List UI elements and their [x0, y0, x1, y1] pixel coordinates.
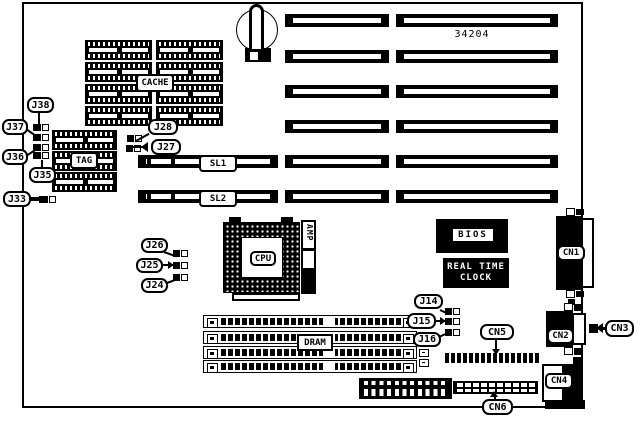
jumper-callout-j36: J36: [2, 149, 28, 165]
jumper-block: [49, 196, 56, 203]
jumper-callout-j27: J27: [151, 139, 181, 155]
rtc-chip: REAL TIME CLOCK: [443, 258, 509, 288]
cn1-bracket: [576, 291, 584, 297]
power-connector: [359, 378, 452, 399]
cn2-bracket: [564, 347, 573, 355]
board-corner-fill: [545, 400, 585, 409]
jumper-callout-j28: J28: [148, 119, 178, 135]
jumper-block: [39, 196, 48, 203]
cn2-connector-body: [572, 313, 586, 345]
connector-callout-cn5: CN5: [480, 324, 514, 340]
rtc-label-line2: CLOCK: [460, 273, 492, 284]
isa-slot-segment: [396, 50, 558, 63]
jumper-callout-j25: J25: [136, 258, 163, 273]
dram-label: DRAM: [297, 334, 333, 351]
jumper-callout-j38: J38: [27, 97, 54, 113]
jumper-block: [42, 152, 49, 159]
sl2-slot: SL2: [138, 190, 278, 203]
cpu-label: CPU: [250, 251, 276, 266]
isa-slot-segment: [285, 190, 389, 203]
cn2-bracket: [574, 304, 583, 311]
cpu-socket-lever: [232, 293, 300, 301]
connector-callout-cn6: CN6: [482, 399, 513, 415]
motherboard-diagram: 34204 SL1 SL2 CACHE TAG: [0, 0, 642, 426]
simm-clip: [419, 359, 429, 367]
cache-label: CACHE: [136, 74, 174, 92]
jumper-callout-j15: J15: [407, 313, 436, 329]
cn1-label: CN1: [557, 245, 585, 261]
jumper-block: [127, 135, 134, 142]
isa-slot-segment: [396, 85, 558, 98]
isa-slot-segment: [396, 190, 558, 203]
bios-label: BIOS: [451, 227, 495, 243]
isa-slot-segment: [285, 155, 389, 168]
jumper-callout-j14: J14: [414, 294, 443, 309]
sl1-slot: SL1: [138, 155, 278, 168]
jumper-callout-j35: J35: [29, 167, 56, 183]
cn2-bracket: [564, 303, 573, 311]
cn4-label: CN4: [545, 373, 573, 389]
jumper-block: [453, 318, 460, 325]
jumper-block: [126, 145, 133, 152]
jumper-block: [42, 134, 49, 141]
jumper-block: [173, 262, 180, 269]
jumper-block: [181, 262, 188, 269]
bulb-icon: [233, 4, 283, 66]
jumper-block: [33, 124, 41, 131]
jumper-block: [33, 152, 41, 159]
cn2-bracket: [574, 348, 583, 355]
cache-chip: [85, 106, 152, 126]
isa-slot-segment: [396, 155, 558, 168]
jumper-block: [42, 124, 49, 131]
jumper-block: [453, 308, 460, 315]
jumper-callout-j33: J33: [3, 191, 31, 207]
connector-callout-cn3: CN3: [605, 320, 634, 337]
isa-slot-segment: [285, 14, 389, 27]
jumper-callout-j24: J24: [141, 278, 168, 293]
cn1-bracket: [576, 209, 584, 215]
jumper-block: [42, 144, 49, 151]
amp-socket-strip: AMP: [301, 220, 316, 294]
isa-slot-segment: [285, 120, 389, 133]
simm-socket: [203, 315, 417, 328]
tag-chip: [52, 172, 117, 192]
jumper-block: [453, 329, 460, 336]
jumper-callout-j16: J16: [413, 332, 441, 347]
board-part-number: 34204: [448, 29, 496, 41]
cache-chip: [156, 40, 223, 60]
isa-slot-segment: [285, 85, 389, 98]
sl2-label: SL2: [199, 190, 237, 207]
tag-chip: [52, 130, 117, 150]
isa-slot-segment: [396, 14, 558, 27]
rtc-label-line1: REAL TIME: [447, 262, 505, 273]
jumper-callout-j26: J26: [141, 238, 168, 253]
isa-slot-segment: [285, 50, 389, 63]
isa-slot-segment: [396, 120, 558, 133]
jumper-block: [445, 318, 452, 325]
cn1-bracket: [566, 290, 575, 298]
tag-label: TAG: [70, 152, 98, 169]
jumper-callout-j37: J37: [2, 119, 28, 135]
jumper-block: [181, 250, 188, 257]
simm-clip: [419, 349, 429, 357]
cache-chip: [85, 40, 152, 60]
cn1-bracket: [566, 208, 575, 216]
simm-socket: [203, 360, 417, 373]
jumper-block: [181, 274, 188, 281]
cn2-label: CN2: [547, 328, 574, 344]
sl1-label: SL1: [199, 155, 237, 172]
